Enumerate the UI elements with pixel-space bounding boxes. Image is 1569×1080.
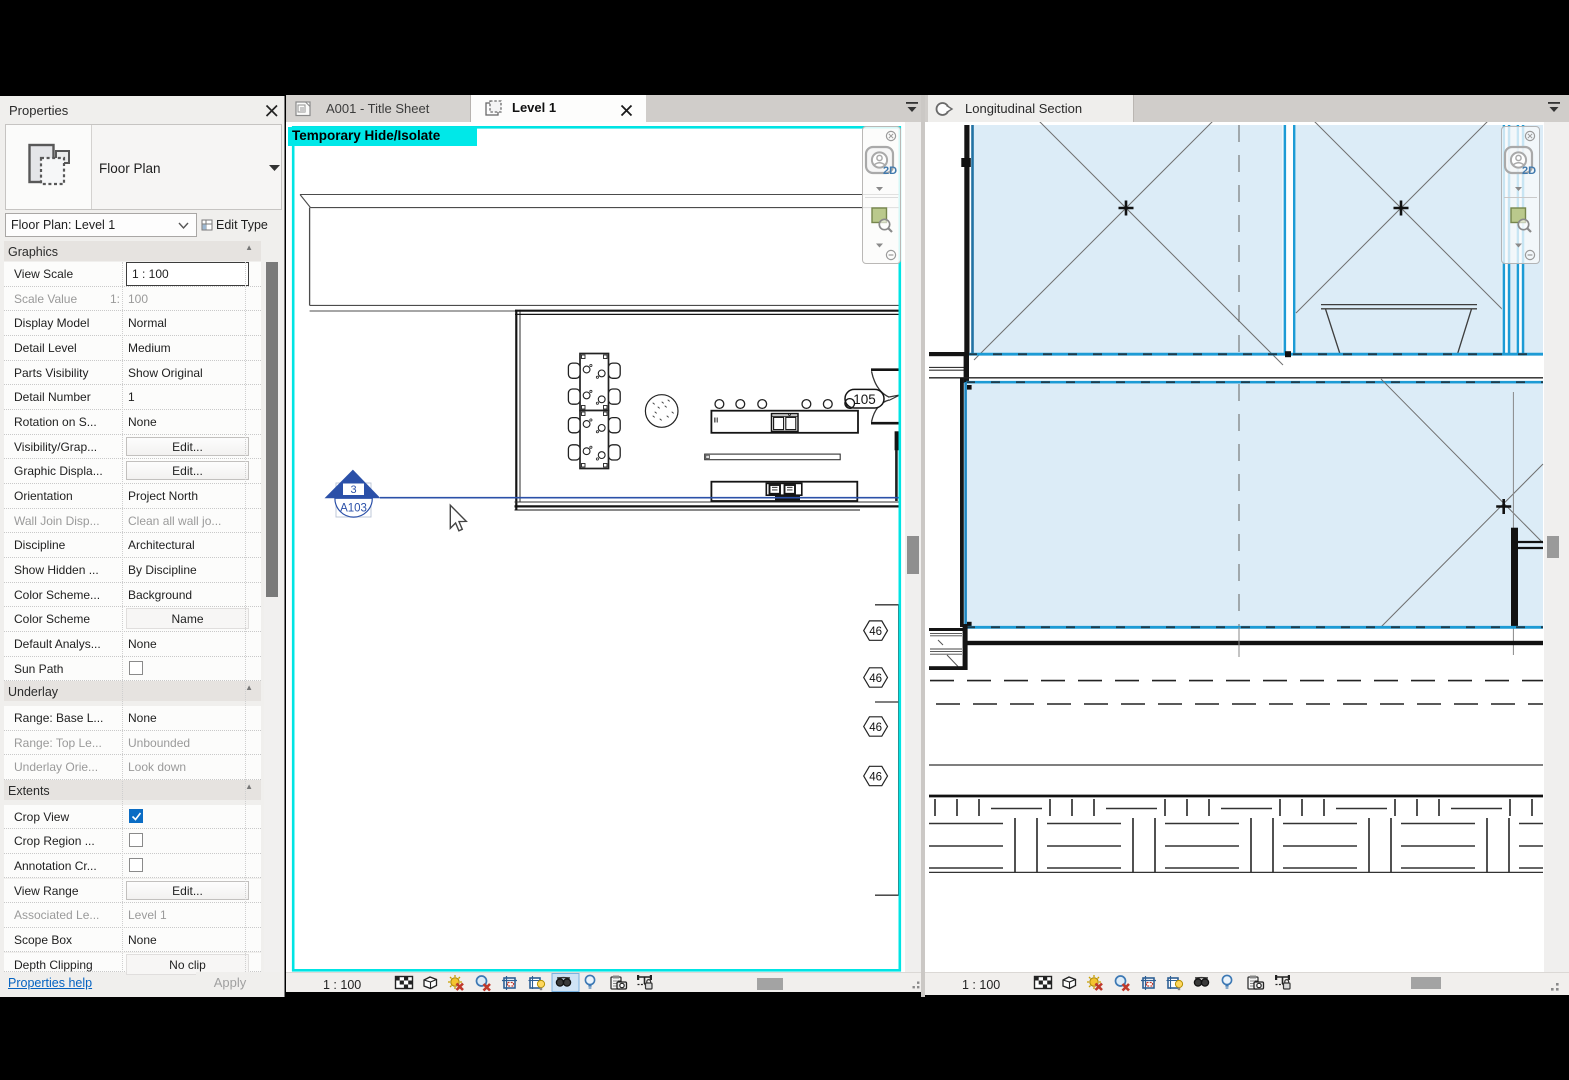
svg-text:Ⅲ: Ⅲ [714, 418, 719, 425]
svg-text:105: 105 [853, 392, 876, 407]
svg-text:A103: A103 [340, 503, 367, 515]
svg-text:2D: 2D [883, 165, 897, 177]
svg-text:46: 46 [869, 771, 882, 783]
svg-text:46: 46 [869, 626, 882, 638]
svg-text:46: 46 [869, 673, 882, 685]
svg-text:3: 3 [350, 484, 356, 496]
svg-text:2D: 2D [1522, 165, 1536, 177]
svg-text:46: 46 [869, 722, 882, 734]
